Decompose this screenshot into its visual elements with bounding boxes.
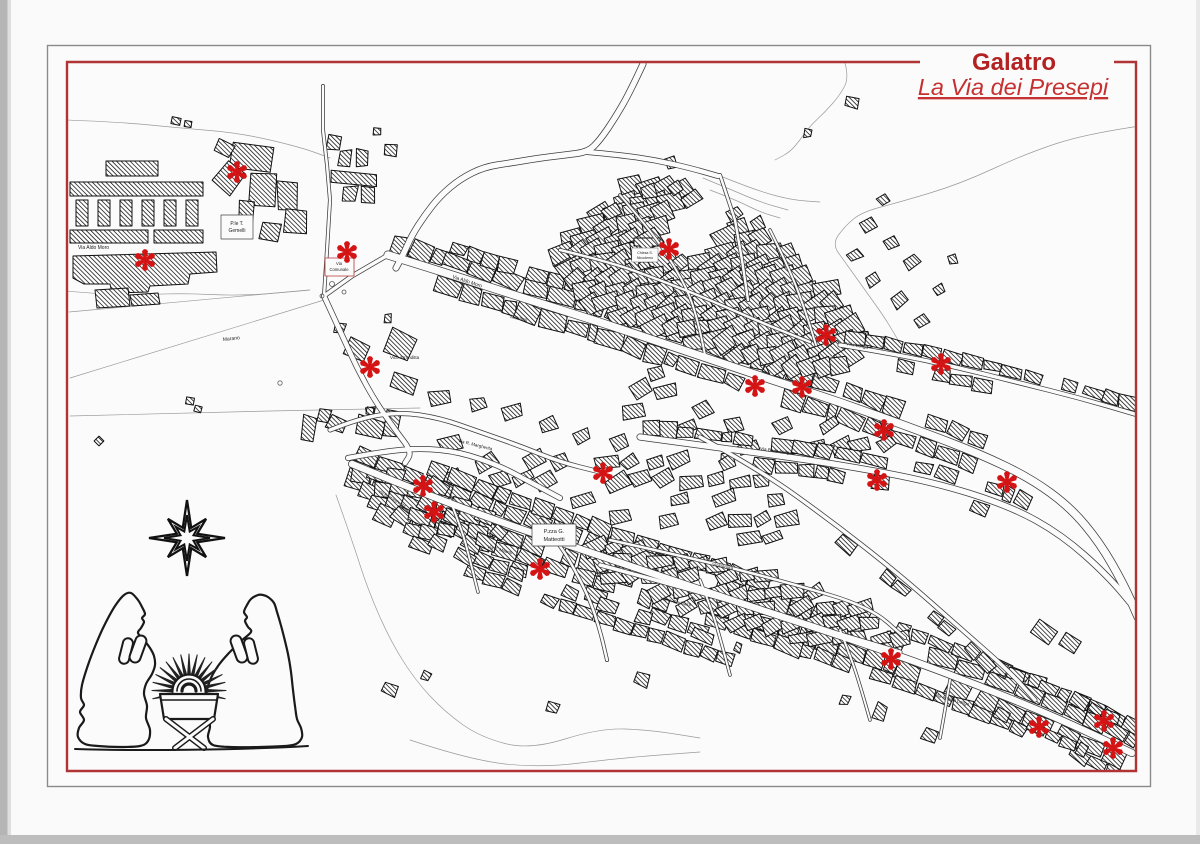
svg-text:P.zza G.: P.zza G. [544, 529, 565, 535]
svg-text:Galatro: Galatro [972, 49, 1056, 76]
svg-text:Vico Arrunditta: Vico Arrunditta [390, 355, 420, 360]
svg-text:P.le T.: P.le T. [230, 221, 243, 227]
svg-text:Nicodemo: Nicodemo [637, 256, 653, 260]
svg-text:Chiesa S.: Chiesa S. [637, 251, 653, 255]
svg-text:Comunale: Comunale [329, 267, 349, 272]
svg-text:Matteotti: Matteotti [543, 537, 564, 543]
svg-text:Via Aldo Moro: Via Aldo Moro [78, 245, 109, 251]
svg-text:Via: Via [336, 261, 343, 266]
svg-text:La Via dei Presepi: La Via dei Presepi [918, 74, 1109, 100]
svg-text:Gemelli: Gemelli [229, 228, 246, 234]
